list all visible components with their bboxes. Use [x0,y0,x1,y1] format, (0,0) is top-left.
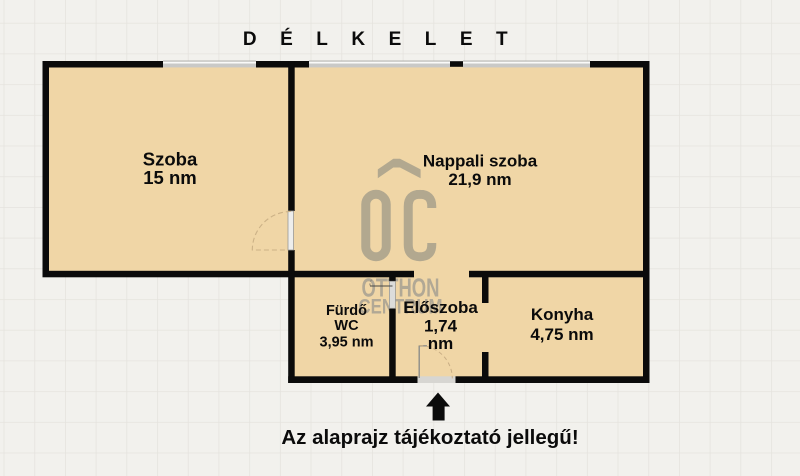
svg-text:WC: WC [334,318,359,334]
svg-text:Előszoba: Előszoba [403,298,478,317]
svg-text:Nappali szoba: Nappali szoba [423,151,538,170]
svg-text:nm: nm [428,334,454,353]
svg-text:DÉLKELET: DÉLKELET [243,28,531,50]
svg-text:21,9 nm: 21,9 nm [448,170,511,189]
svg-text:15 nm: 15 nm [143,167,196,188]
svg-text:1,74: 1,74 [424,317,458,336]
svg-text:4,75 nm: 4,75 nm [530,325,593,344]
svg-text:Fürdő: Fürdő [326,303,367,319]
svg-text:Konyha: Konyha [531,305,594,324]
svg-text:Az alaprajz tájékoztató jelleg: Az alaprajz tájékoztató jellegű! [281,426,578,449]
svg-text:3,95 nm: 3,95 nm [320,335,374,351]
